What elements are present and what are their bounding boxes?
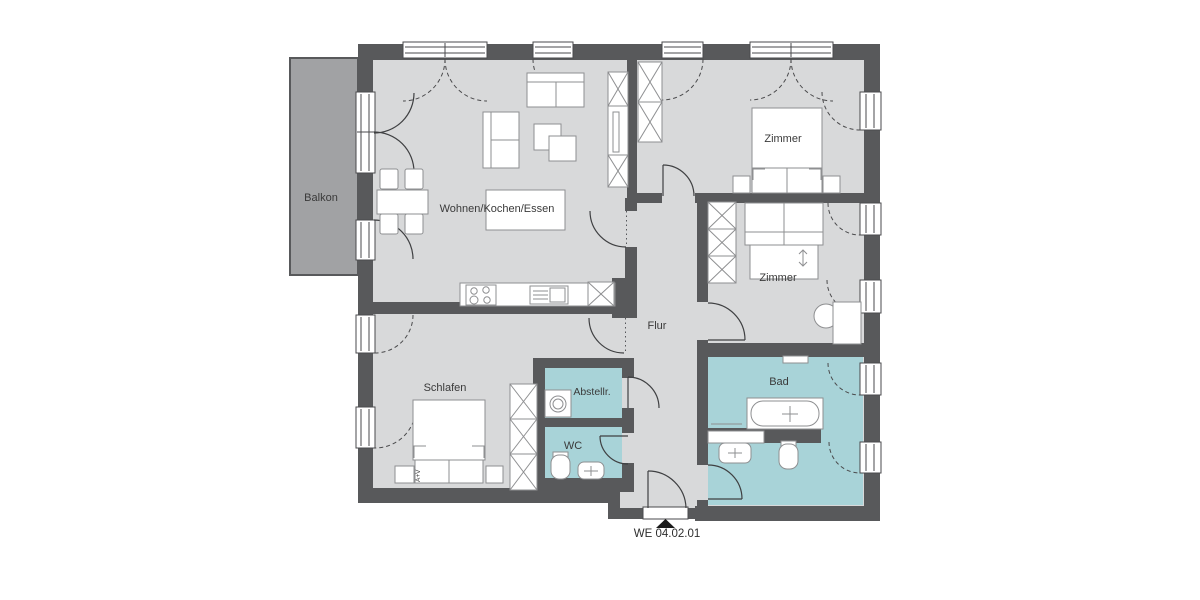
nightstand <box>733 176 750 193</box>
washing-machine <box>545 390 571 417</box>
unit-label: WE 04.02.01 <box>634 528 700 540</box>
wall-segment <box>695 506 880 521</box>
living-wardrobe <box>608 72 628 187</box>
loveseat <box>483 112 519 168</box>
wall-segment <box>620 508 643 519</box>
kitchen-counter <box>460 282 615 306</box>
schlafen-wardrobe <box>510 384 537 490</box>
wall-segment <box>697 500 708 521</box>
room-label-bad: Bad <box>769 376 789 388</box>
bath-sink <box>719 443 751 463</box>
bath-counter <box>708 431 764 443</box>
floorplan-page: Balkon Wohnen/Kochen/Essen Zimmer Zimmer… <box>0 0 1200 600</box>
window-top-living-double <box>403 42 487 58</box>
alcove-wardrobe <box>638 62 662 142</box>
wc-toilet <box>551 452 570 479</box>
window-left-schlafen-a <box>356 315 375 353</box>
wall-segment <box>612 278 637 318</box>
sofa <box>527 73 584 107</box>
room-label-flur: Flur <box>648 320 667 332</box>
wall-segment <box>625 198 637 211</box>
window-right-zimmer2-a <box>860 203 881 235</box>
north-entrance-marker-icon <box>656 519 675 528</box>
wall-segment <box>637 193 662 203</box>
wall-segment <box>533 478 634 492</box>
dining-chair <box>380 214 398 234</box>
wall-segment <box>608 488 620 519</box>
dining-chair <box>380 169 398 189</box>
bath-toilet <box>779 441 798 469</box>
balcony-door-double <box>356 92 375 173</box>
entrance-threshold <box>643 507 688 519</box>
nightstand <box>395 466 414 483</box>
window-right-zimmer1 <box>860 92 881 130</box>
balcony-door-single <box>356 220 375 260</box>
balcony-floor <box>290 58 358 275</box>
room-label-abstellraum: Abstellr. <box>573 386 610 398</box>
wall-segment <box>697 343 864 357</box>
window-top-zimmer1-double <box>750 42 833 58</box>
dishwasher <box>530 286 568 304</box>
nightstand <box>823 176 840 193</box>
wall-segment <box>625 247 637 278</box>
wall-segment <box>697 203 708 302</box>
room-label-zimmer1: Zimmer <box>764 133 802 145</box>
window-right-zimmer2-b <box>860 280 881 313</box>
window-right-bad-b <box>860 442 881 473</box>
window-top-living-single <box>533 42 573 58</box>
kitchen-tall-unit <box>588 282 614 306</box>
wall-segment <box>697 357 708 465</box>
room-label-wc: WC <box>564 440 582 452</box>
wall-segment <box>533 418 634 427</box>
nightstand <box>486 466 503 483</box>
bed-annotation: A+V <box>415 469 422 482</box>
dining-chair <box>405 214 423 234</box>
wall-segment <box>622 358 634 378</box>
room-label-schlafen: Schlafen <box>424 382 467 394</box>
wall-segment <box>622 408 634 433</box>
zimmer2-wardrobe <box>708 202 736 283</box>
wall-segment <box>533 358 634 368</box>
window-top-alcove <box>662 42 703 58</box>
stove <box>466 285 496 305</box>
wc-sink <box>578 462 604 479</box>
room-label-wohnen: Wohnen/Kochen/Essen <box>440 203 555 215</box>
dining-table <box>377 190 428 214</box>
window-right-bad-a <box>860 363 881 395</box>
floorplan-drawing: Balkon Wohnen/Kochen/Essen Zimmer Zimmer… <box>0 0 1200 600</box>
bath-shelf <box>783 356 808 363</box>
dining-chair <box>405 169 423 189</box>
bed-zimmer2 <box>745 203 823 279</box>
room-label-balkon: Balkon <box>304 192 338 204</box>
window-left-schlafen-b <box>356 407 375 448</box>
unit-marker: WE 04.02.01 <box>634 519 700 540</box>
room-label-zimmer2: Zimmer <box>759 272 797 284</box>
bathtub <box>747 398 823 429</box>
